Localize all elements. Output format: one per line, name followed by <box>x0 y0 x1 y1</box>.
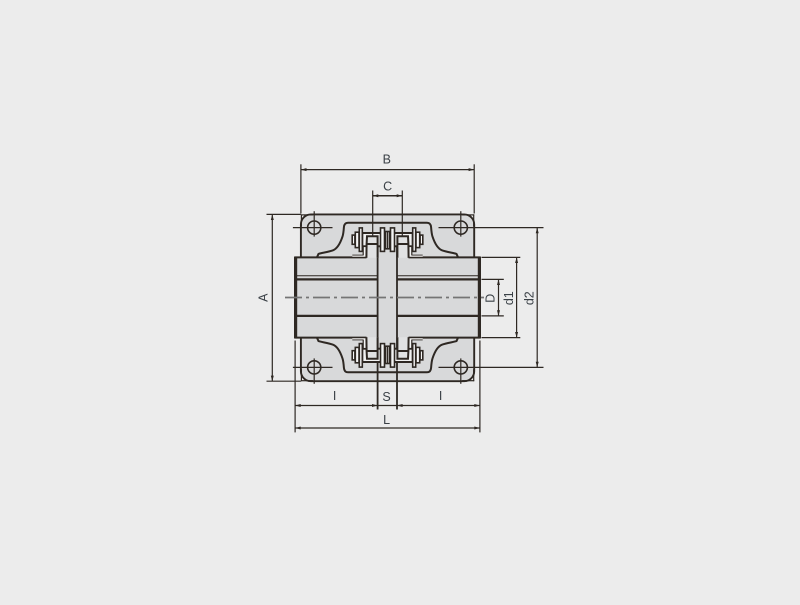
svg-text:D: D <box>483 294 497 303</box>
svg-text:A: A <box>257 293 271 302</box>
svg-text:d2: d2 <box>523 291 537 305</box>
svg-text:d1: d1 <box>502 291 516 305</box>
svg-text:I: I <box>333 389 336 403</box>
svg-text:S: S <box>382 390 390 404</box>
svg-text:I: I <box>439 389 442 403</box>
svg-text:L: L <box>383 413 390 427</box>
svg-text:C: C <box>383 180 392 194</box>
svg-text:B: B <box>383 153 391 167</box>
